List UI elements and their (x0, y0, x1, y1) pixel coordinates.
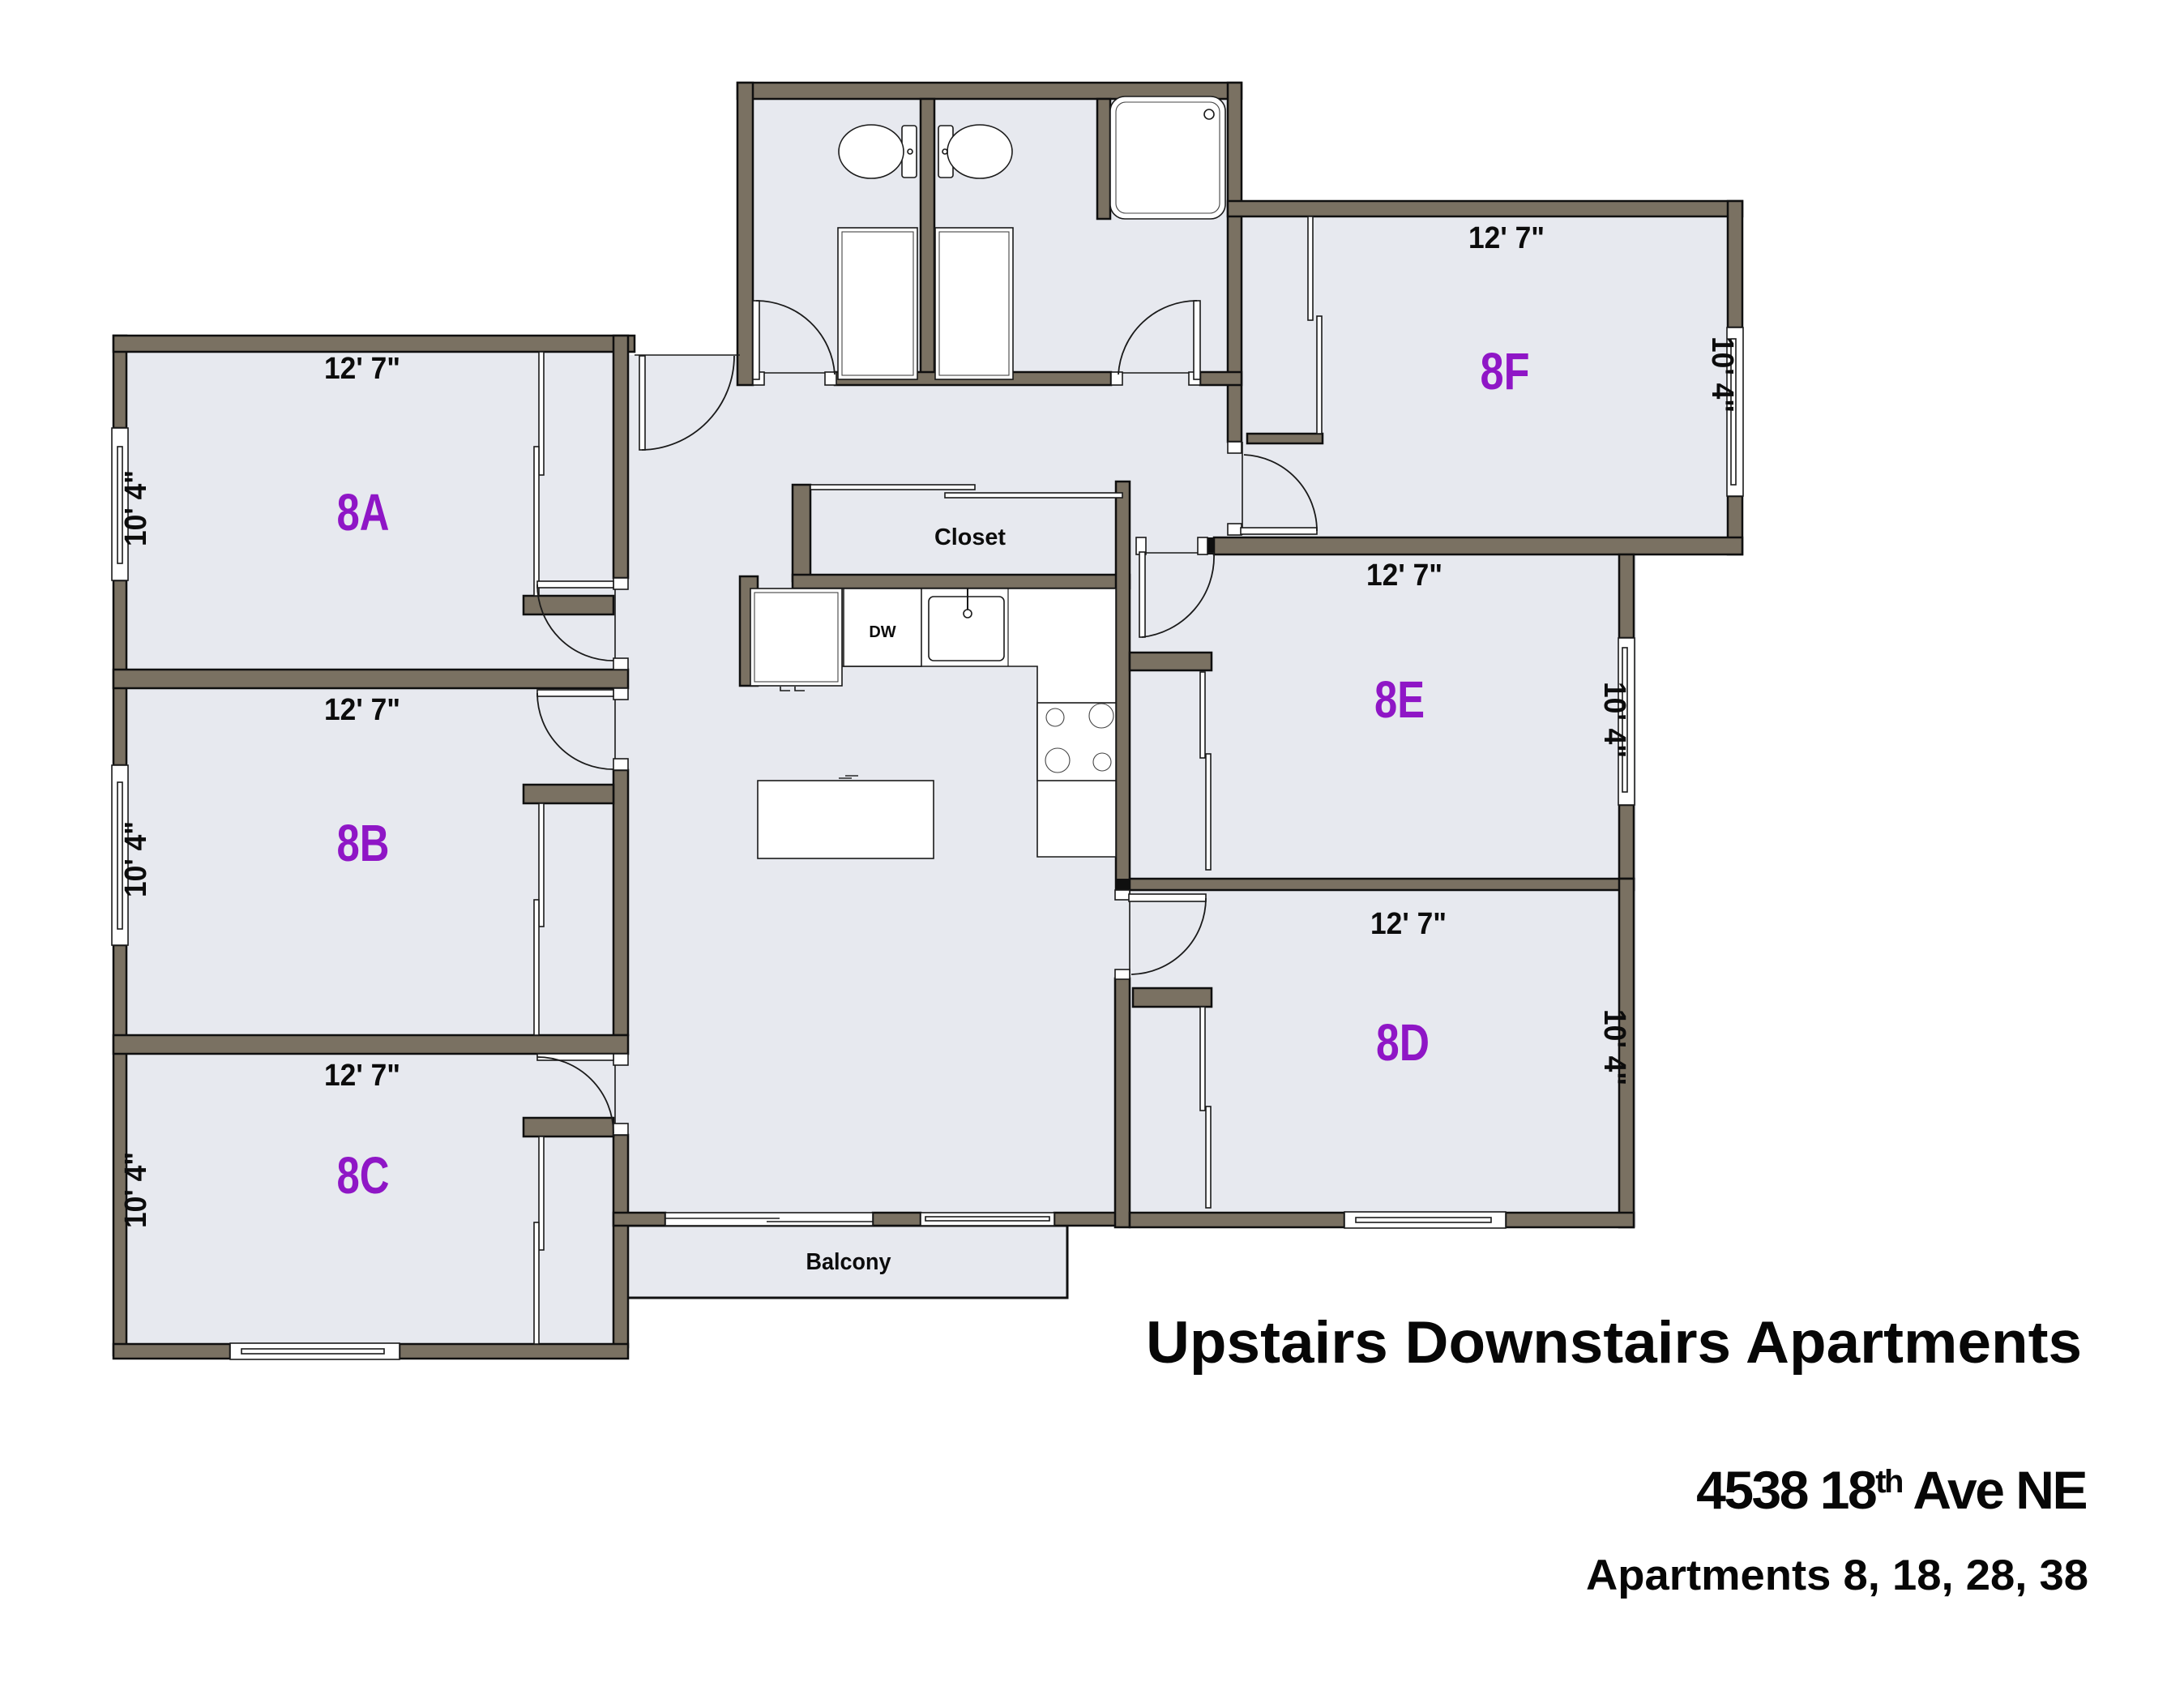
svg-text:10' 4": 10' 4" (119, 821, 153, 897)
svg-text:8F: 8F (1481, 342, 1530, 400)
svg-text:8D: 8D (1376, 1013, 1430, 1072)
svg-text:12' 7": 12' 7" (1366, 559, 1442, 593)
svg-text:12' 7": 12' 7" (1370, 907, 1447, 941)
svg-text:8C: 8C (337, 1146, 390, 1205)
svg-text:10' 4": 10' 4" (1597, 1009, 1631, 1085)
svg-text:12' 7": 12' 7" (1468, 221, 1545, 255)
svg-text:10' 4": 10' 4" (1705, 336, 1739, 413)
svg-text:Closet: Closet (934, 524, 1006, 550)
svg-text:Balcony: Balcony (806, 1249, 891, 1275)
svg-text:12' 7": 12' 7" (324, 352, 400, 386)
svg-text:10' 4": 10' 4" (119, 1152, 153, 1228)
svg-text:10' 4": 10' 4" (119, 470, 153, 546)
svg-text:8A: 8A (337, 483, 390, 541)
svg-text:8E: 8E (1374, 670, 1425, 729)
svg-text:12' 7": 12' 7" (324, 693, 400, 727)
svg-text:Apartments 8, 18, 28, 38: Apartments 8, 18, 28, 38 (1586, 1552, 2088, 1599)
svg-text:4538 18th Ave NE: 4538 18th Ave NE (1696, 1460, 2086, 1520)
svg-text:8B: 8B (337, 814, 390, 872)
svg-text:Upstairs Downstairs Apartments: Upstairs Downstairs Apartments (1146, 1310, 2082, 1376)
svg-text:DW: DW (869, 623, 895, 641)
svg-text:12' 7": 12' 7" (324, 1059, 400, 1093)
svg-text:10' 4": 10' 4" (1597, 682, 1631, 758)
